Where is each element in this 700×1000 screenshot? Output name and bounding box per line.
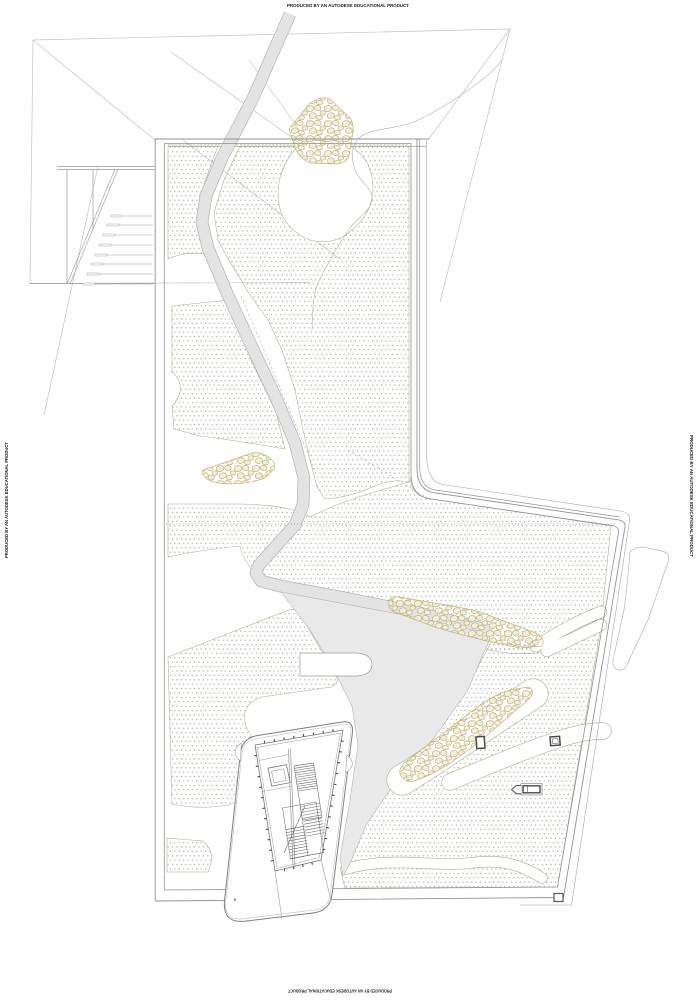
svg-text:PRODUCED BY AN AUTODESK EDUCAT: PRODUCED BY AN AUTODESK EDUCATIONAL PROD… [4, 442, 10, 558]
svg-text:PRODUCED BY AN AUTODESK EDUCAT: PRODUCED BY AN AUTODESK EDUCATIONAL PROD… [287, 3, 409, 9]
svg-text:5: 5 [234, 898, 236, 902]
svg-text:PRODUCED BY AN AUTODESK EDUCAT: PRODUCED BY AN AUTODESK EDUCATIONAL PROD… [688, 435, 694, 557]
svg-text:PRODUCED BY AN AUTODESK EDUCAT: PRODUCED BY AN AUTODESK EDUCATIONAL PROD… [288, 989, 392, 994]
